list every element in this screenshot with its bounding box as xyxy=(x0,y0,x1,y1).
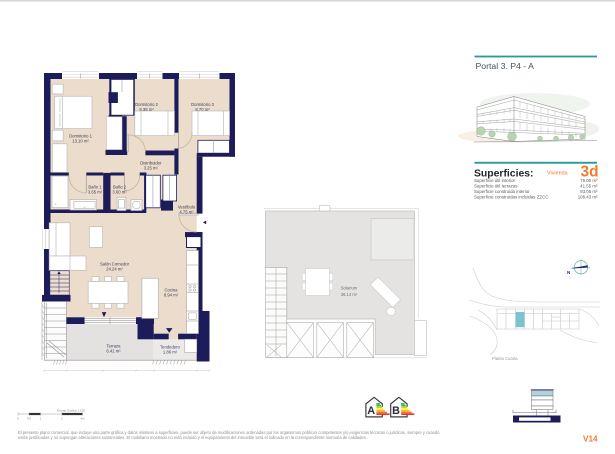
svg-text:0.5: 0.5 xyxy=(27,417,32,421)
svg-text:6.41 m²: 6.41 m² xyxy=(106,349,121,354)
svg-text:79.00 m²: 79.00 m² xyxy=(580,178,598,183)
svg-text:24.24 m²: 24.24 m² xyxy=(106,267,123,272)
svg-text:3.25 m²: 3.25 m² xyxy=(144,166,159,171)
svg-text:8.70 m²: 8.70 m² xyxy=(195,107,210,112)
svg-text:2: 2 xyxy=(61,417,63,421)
svg-text:A: A xyxy=(367,405,375,417)
svg-text:106.43 m²: 106.43 m² xyxy=(578,195,598,200)
svg-text:Superficie útil terrazas: Superficie útil terrazas xyxy=(474,184,518,189)
svg-text:93.05 m²: 93.05 m² xyxy=(580,189,598,194)
svg-text:Escala Gráfica 1:100: Escala Gráfica 1:100 xyxy=(57,408,85,412)
svg-text:1: 1 xyxy=(40,417,42,421)
svg-text:Portal 3. P4 - A: Portal 3. P4 - A xyxy=(476,61,535,71)
svg-text:V14: V14 xyxy=(583,435,598,444)
svg-text:4.75 m²: 4.75 m² xyxy=(179,210,194,215)
svg-text:Planta Cuarta: Planta Cuarta xyxy=(492,356,518,361)
svg-text:Vivienda: Vivienda xyxy=(547,171,568,177)
svg-text:3.65 m²: 3.65 m² xyxy=(88,190,103,195)
svg-text:41.55 m²: 41.55 m² xyxy=(580,184,598,189)
svg-text:13.10 m²: 13.10 m² xyxy=(72,139,89,144)
svg-text:1.86 m²: 1.86 m² xyxy=(163,350,178,355)
svg-text:Superficie útil interior: Superficie útil interior xyxy=(474,178,516,183)
svg-text:B: B xyxy=(392,405,400,417)
svg-text:Superficie construidas incluid: Superficie construidas incluidas ZZCC xyxy=(474,195,548,200)
svg-text:N: N xyxy=(567,270,570,275)
svg-text:3.60 m²: 3.60 m² xyxy=(112,190,127,195)
svg-text:Solarium: Solarium xyxy=(341,286,358,291)
svg-text:4m: 4m xyxy=(80,417,85,421)
svg-text:8.94 m²: 8.94 m² xyxy=(164,293,179,298)
svg-text:0: 0 xyxy=(17,417,19,421)
svg-text:estén justificadas y no supong: estén justificadas y no supongan alterac… xyxy=(18,435,367,440)
svg-text:36.14 m²: 36.14 m² xyxy=(341,292,358,297)
svg-text:9.38 m²: 9.38 m² xyxy=(139,107,154,112)
svg-text:Superficie construida interior: Superficie construida interior xyxy=(474,189,530,194)
